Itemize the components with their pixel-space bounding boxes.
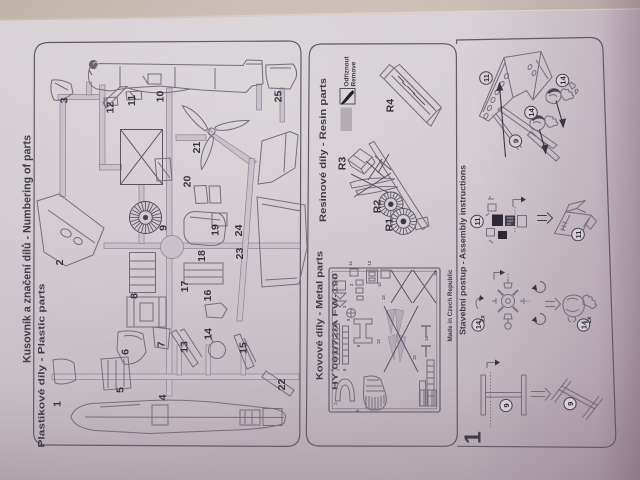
svg-text:17: 17: [179, 281, 191, 293]
svg-text:Made in Czech Republic: Made in Czech Republic: [447, 269, 454, 341]
svg-text:9: 9: [502, 403, 511, 407]
svg-text:12: 12: [367, 260, 372, 265]
svg-text:23: 23: [234, 248, 246, 260]
svg-text:11: 11: [126, 95, 138, 106]
svg-text:Remove: Remove: [351, 61, 358, 86]
svg-text:R3: R3: [337, 157, 349, 171]
svg-text:3: 3: [59, 97, 71, 103]
svg-text:18: 18: [196, 250, 208, 262]
svg-text:Resinové díly - Resin parts: Resinové díly - Resin parts: [317, 78, 328, 222]
svg-text:11: 11: [574, 230, 583, 239]
svg-text:16: 16: [202, 290, 214, 302]
svg-text:9: 9: [512, 139, 521, 143]
svg-text:Plastikové díly - Plastic part: Plastikové díly - Plastic parts: [37, 283, 47, 447]
svg-text:R1: R1: [384, 218, 396, 232]
svg-text:1: 1: [52, 401, 64, 407]
svg-text:14: 14: [203, 328, 215, 340]
svg-text:10: 10: [155, 91, 167, 103]
svg-text:13: 13: [376, 339, 381, 344]
svg-text:10: 10: [377, 282, 382, 287]
svg-text:13: 13: [381, 295, 386, 300]
svg-text:Kusovník a značení dílů - Numb: Kusovník a značení dílů - Numbering of p…: [22, 135, 34, 363]
svg-text:R4: R4: [384, 99, 396, 113]
svg-text:12: 12: [105, 102, 117, 114]
svg-text:14: 14: [527, 108, 536, 117]
svg-text:5: 5: [115, 387, 127, 393]
svg-text:2: 2: [54, 259, 66, 265]
svg-text:Stavební postup - Assembly ins: Stavební postup - Assembly instructions: [458, 165, 468, 335]
svg-text:11: 11: [348, 260, 353, 265]
svg-text:2x: 2x: [481, 315, 487, 322]
svg-text:6: 6: [120, 349, 132, 355]
svg-text:11: 11: [482, 73, 491, 82]
svg-text:14: 14: [559, 76, 568, 85]
svg-text:24: 24: [233, 225, 245, 237]
svg-text:Kovové díly - Metal parts: Kovové díly - Metal parts: [314, 251, 325, 380]
svg-text:7: 7: [156, 341, 168, 347]
svg-text:8: 8: [129, 293, 141, 299]
svg-text:16: 16: [433, 271, 438, 276]
svg-text:21: 21: [191, 142, 203, 154]
svg-text:R2: R2: [372, 200, 384, 214]
svg-text:Odříznout: Odříznout: [344, 55, 351, 86]
svg-text:14: 14: [424, 336, 429, 341]
svg-text:1: 1: [460, 431, 486, 444]
svg-text:25: 25: [273, 91, 285, 103]
svg-text:4: 4: [157, 394, 169, 400]
svg-text:22: 22: [276, 379, 288, 391]
svg-text:20: 20: [182, 176, 194, 188]
svg-text:13: 13: [179, 341, 191, 353]
svg-text:11: 11: [473, 217, 482, 226]
svg-text:15: 15: [412, 355, 417, 360]
svg-text:9: 9: [566, 402, 575, 406]
svg-text:19: 19: [210, 224, 222, 236]
svg-text:15: 15: [238, 342, 250, 354]
svg-text:2x: 2x: [587, 316, 593, 323]
